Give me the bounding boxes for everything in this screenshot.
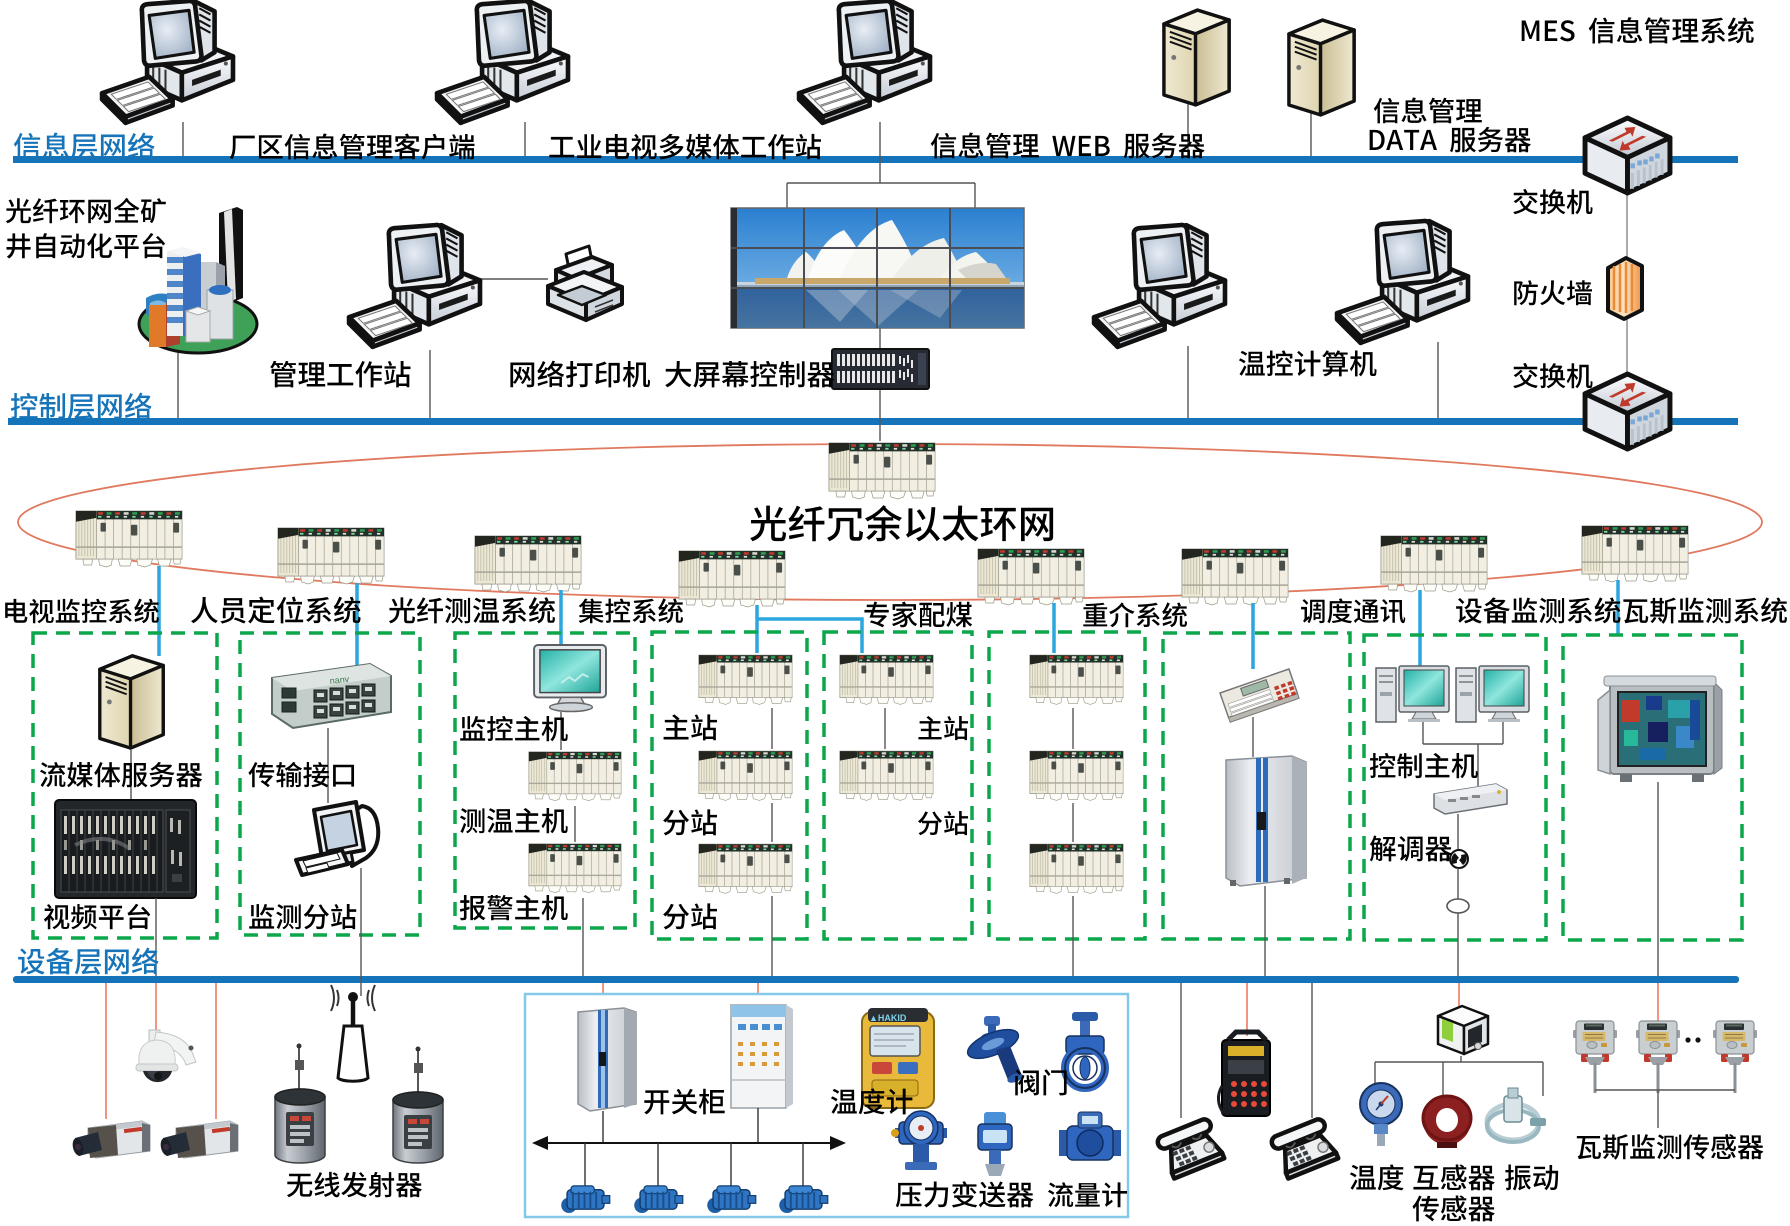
- svg-text:▲HAKID: ▲HAKID: [869, 1013, 907, 1023]
- svg-text:nanv: nanv: [329, 674, 350, 686]
